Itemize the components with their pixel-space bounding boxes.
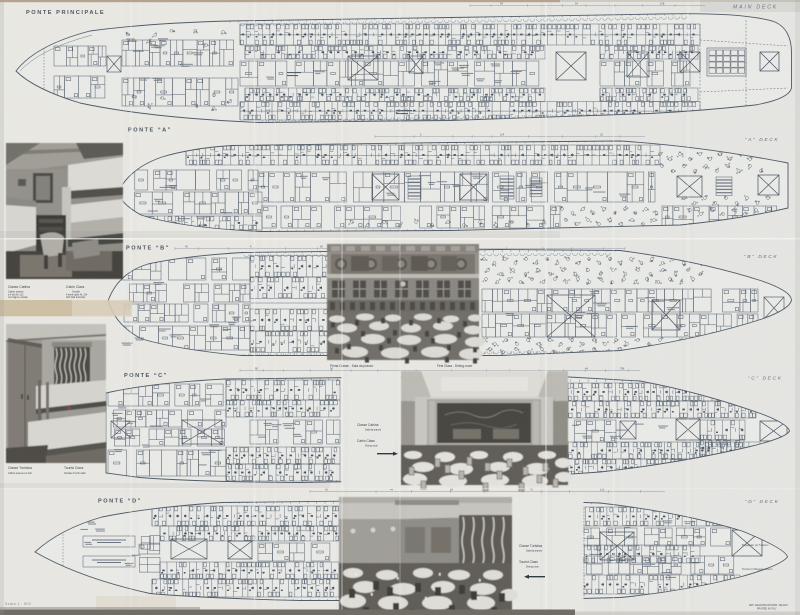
svg-text:114: 114 xyxy=(500,132,505,136)
svg-text:PONTE PRINCIPALE: PONTE PRINCIPALE xyxy=(26,10,105,16)
svg-text:754: 754 xyxy=(620,366,625,370)
svg-text:“B” DECK: “B” DECK xyxy=(744,254,778,260)
svg-text:116: 116 xyxy=(600,487,605,491)
svg-text:“A” DECK: “A” DECK xyxy=(745,137,779,143)
svg-text:“C” DECK: “C” DECK xyxy=(748,376,783,382)
svg-text:“D” DECK: “D” DECK xyxy=(745,499,780,505)
